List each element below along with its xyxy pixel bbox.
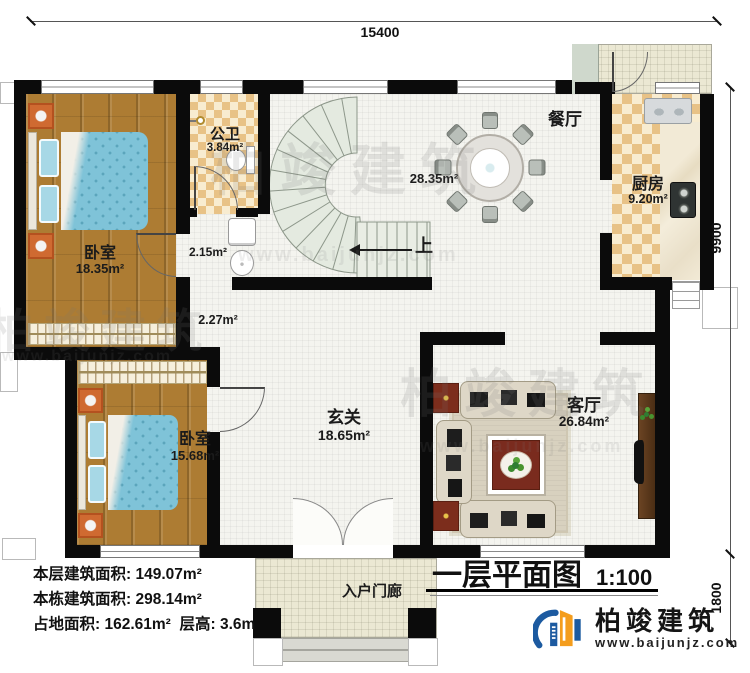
stairs-arrow-head xyxy=(349,244,360,256)
plant-icon xyxy=(644,412,649,417)
room-label-porch: 入户门廊 xyxy=(322,583,422,600)
wall xyxy=(243,80,303,94)
room-area-bathroom: 3.84m² xyxy=(194,142,256,155)
brand-logo-icon xyxy=(533,602,587,656)
laundry-sink-icon xyxy=(230,250,254,276)
room-label-foyer: 玄关 xyxy=(306,408,382,428)
wall xyxy=(154,80,200,94)
wall xyxy=(575,82,615,94)
wall xyxy=(556,80,572,94)
end-table-icon xyxy=(433,383,459,413)
bed-icon xyxy=(28,132,148,230)
wall xyxy=(232,277,432,290)
wall xyxy=(176,277,190,347)
stat-value: 298.14m² xyxy=(135,591,201,608)
dimension-line-right xyxy=(730,88,731,645)
stairs-direction-arrow xyxy=(360,249,412,251)
stairs-up-label: 上 xyxy=(412,236,436,257)
room-area-corridor: 2.27m² xyxy=(192,313,244,327)
stat-label: 占地面积: xyxy=(33,616,100,633)
stat-value: 3.6m xyxy=(220,616,255,633)
bed-pillow xyxy=(39,185,59,223)
room-area-laundry: 2.15m² xyxy=(186,246,230,260)
porch-step xyxy=(262,650,422,662)
window xyxy=(655,82,700,94)
kitchen-sink-icon xyxy=(644,98,692,124)
room-label-living: 客厅 xyxy=(548,396,620,416)
wall xyxy=(388,80,457,94)
stat-line: 本层建筑面积: 149.07m² xyxy=(33,562,255,587)
window xyxy=(303,80,388,94)
brand-url: www.baijunjz.com xyxy=(595,635,739,650)
room-area-dining: 28.35m² xyxy=(398,172,470,187)
porch-pillar xyxy=(253,608,281,638)
nightstand-icon xyxy=(78,388,103,413)
sofa-icon xyxy=(436,420,472,504)
bed-pillow xyxy=(88,465,106,503)
brand-logo: 柏竣建筑 www.baijunjz.com xyxy=(533,602,739,656)
dimension-top-label: 15400 xyxy=(345,24,415,40)
chair-icon xyxy=(529,160,546,176)
wall xyxy=(207,347,220,387)
dimension-right-main-label: 9900 xyxy=(708,208,724,268)
bed-pillow xyxy=(88,421,106,459)
room-area-bedroom-top: 18.35m² xyxy=(66,262,134,277)
brand-name: 柏竣建筑 xyxy=(595,608,739,635)
bed-headboard xyxy=(28,132,37,230)
chair-icon xyxy=(482,112,498,129)
wall xyxy=(14,347,220,360)
pillar-base xyxy=(408,638,438,666)
stat-label: 本栋建筑面积: xyxy=(33,591,131,608)
nightstand-icon xyxy=(28,233,54,259)
wall xyxy=(600,233,612,280)
stat-line: 占地面积: 162.61m² 层高: 3.6m xyxy=(33,612,255,637)
ac-platform xyxy=(702,287,738,329)
plan-title: 一层平面图 xyxy=(432,559,582,592)
room-label-bathroom: 公卫 xyxy=(194,126,256,143)
room-area-kitchen: 9.20m² xyxy=(608,192,688,206)
bed-sheet-fold xyxy=(61,132,91,230)
nightstand-icon xyxy=(78,513,103,538)
sofa-icon xyxy=(460,500,556,538)
wall xyxy=(258,94,270,214)
nightstand-icon xyxy=(28,103,54,129)
sofa-icon xyxy=(460,381,556,419)
wardrobe-icon xyxy=(28,323,176,345)
tv-icon xyxy=(634,440,644,484)
wall xyxy=(655,290,670,558)
wall xyxy=(420,332,433,545)
chair-icon xyxy=(482,206,498,223)
bed-headboard xyxy=(78,415,86,510)
room-area-living: 26.84m² xyxy=(546,414,622,430)
wall xyxy=(65,545,100,558)
washer-icon xyxy=(228,218,256,246)
window xyxy=(200,80,243,94)
title-underline-thin xyxy=(430,595,658,596)
area-stats: 本层建筑面积: 149.07m² 本栋建筑面积: 298.14m² 占地面积: … xyxy=(33,562,255,637)
dimension-line-top xyxy=(30,21,718,22)
bed-sheet-fold xyxy=(108,415,134,510)
plant-icon xyxy=(512,462,519,469)
stat-value: 162.61m² xyxy=(104,616,170,633)
pillar-base xyxy=(253,638,283,666)
window xyxy=(41,80,154,94)
wall xyxy=(200,545,293,558)
wall xyxy=(65,347,77,558)
kitchen-back-steps xyxy=(672,281,700,309)
porch-step xyxy=(262,638,422,650)
wardrobe-icon xyxy=(78,361,207,384)
room-label-dining: 餐厅 xyxy=(530,110,600,130)
porch-pillar xyxy=(408,608,436,638)
room-label-bedroom-bottom: 卧室 xyxy=(158,431,232,449)
plan-scale: 1:100 xyxy=(596,565,652,590)
window-sill xyxy=(2,538,36,560)
stat-label: 层高: xyxy=(179,616,215,633)
stat-line: 本栋建筑面积: 298.14m² xyxy=(33,587,255,612)
dining-table-center xyxy=(470,148,510,188)
light-fixture-icon xyxy=(196,116,205,125)
wall xyxy=(600,277,672,290)
floorplan-canvas: 15400 9900 1800 入户门廊 厨房 9.20m² 公卫 3.84m²… xyxy=(0,0,750,673)
window xyxy=(457,80,556,94)
wall xyxy=(14,80,26,360)
wall xyxy=(600,94,612,180)
plan-title-block: 一层平面图1:100 xyxy=(432,550,652,594)
stat-value: 149.07m² xyxy=(135,566,201,583)
bed-pillow xyxy=(39,139,59,177)
room-area-bedroom-bottom: 15.68m² xyxy=(156,449,234,464)
title-underline xyxy=(426,589,658,592)
end-table-icon xyxy=(433,501,459,531)
window xyxy=(100,545,200,558)
wall xyxy=(600,332,670,345)
wall xyxy=(236,208,258,217)
room-area-foyer: 18.65m² xyxy=(304,427,384,443)
stat-label: 本层建筑面积: xyxy=(33,566,131,583)
